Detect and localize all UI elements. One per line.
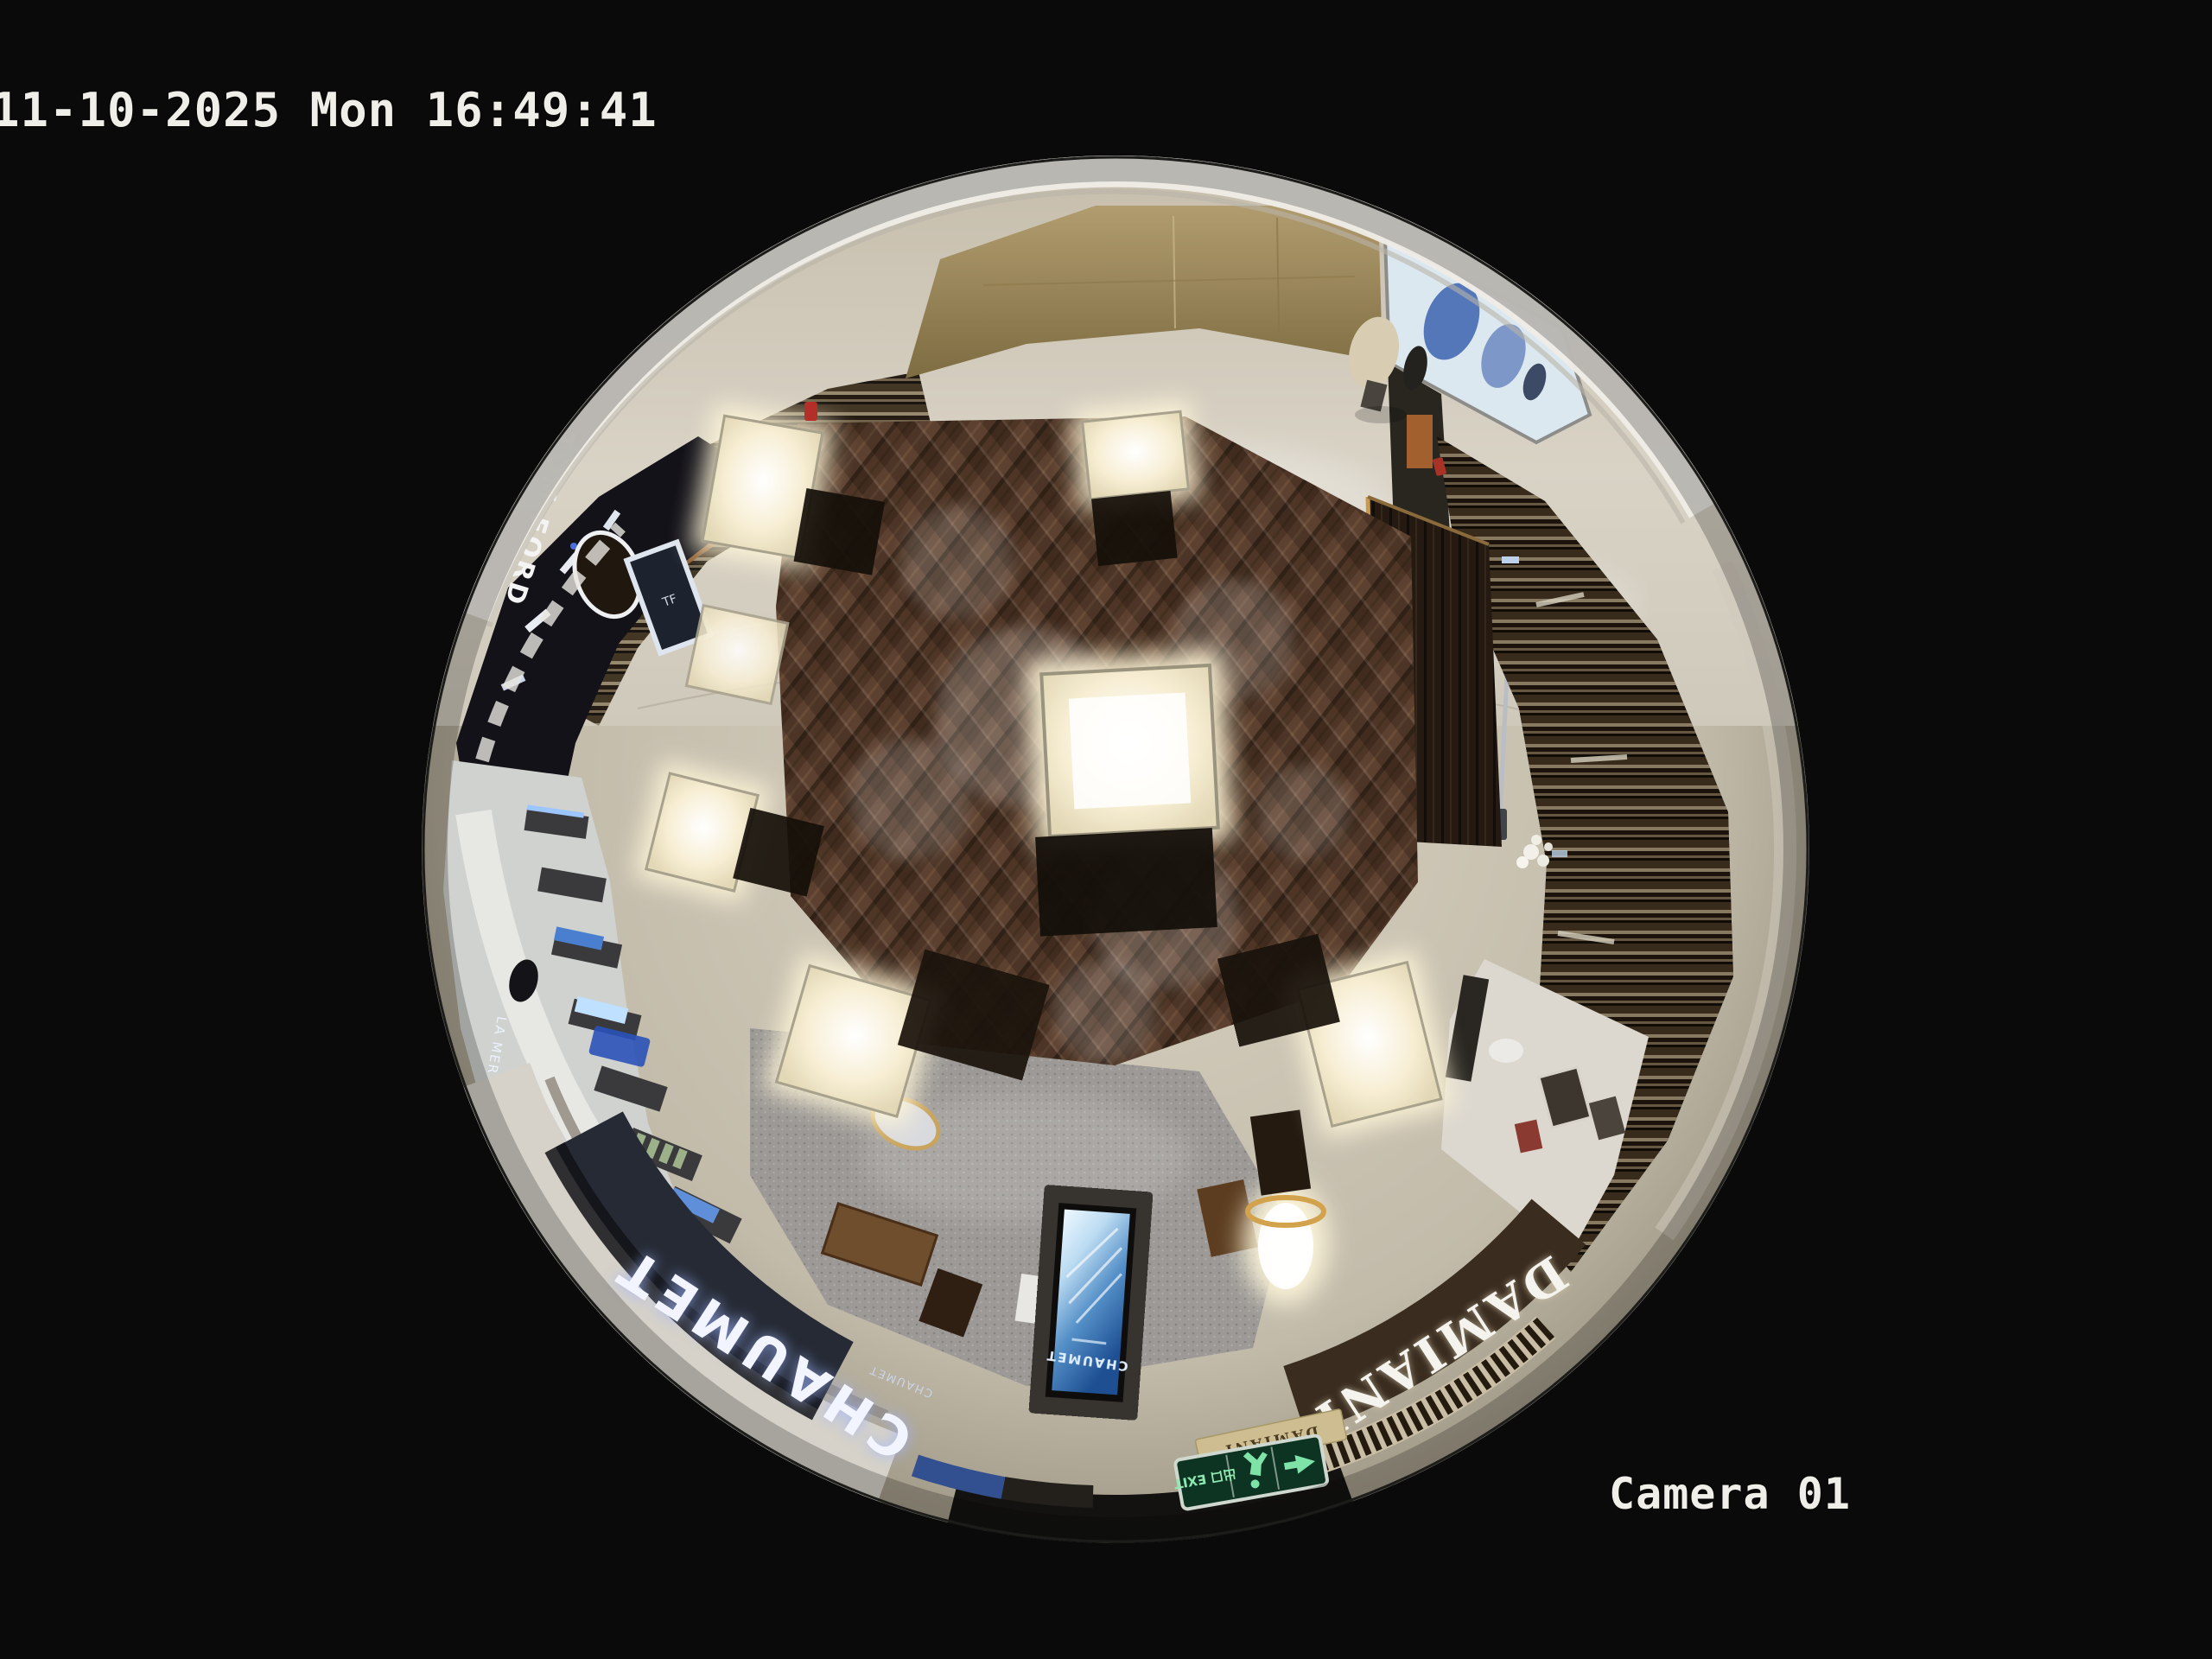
osd-timestamp: 11-10-2025 Mon 16:49:41 (0, 83, 658, 137)
fisheye-scene: TF TOM FORD (422, 156, 1809, 1543)
fisheye-camera-view: TF TOM FORD (422, 156, 1809, 1543)
osd-camera-label: Camera 01 (1609, 1469, 1851, 1519)
display-case-center (1026, 651, 1236, 936)
chaumet-kiosk: CHAUMET (1028, 1185, 1153, 1421)
cctv-frame: TF TOM FORD (0, 0, 2212, 1659)
display-case-left-upper (686, 606, 788, 704)
fire-extinguisher-sign (804, 402, 817, 421)
